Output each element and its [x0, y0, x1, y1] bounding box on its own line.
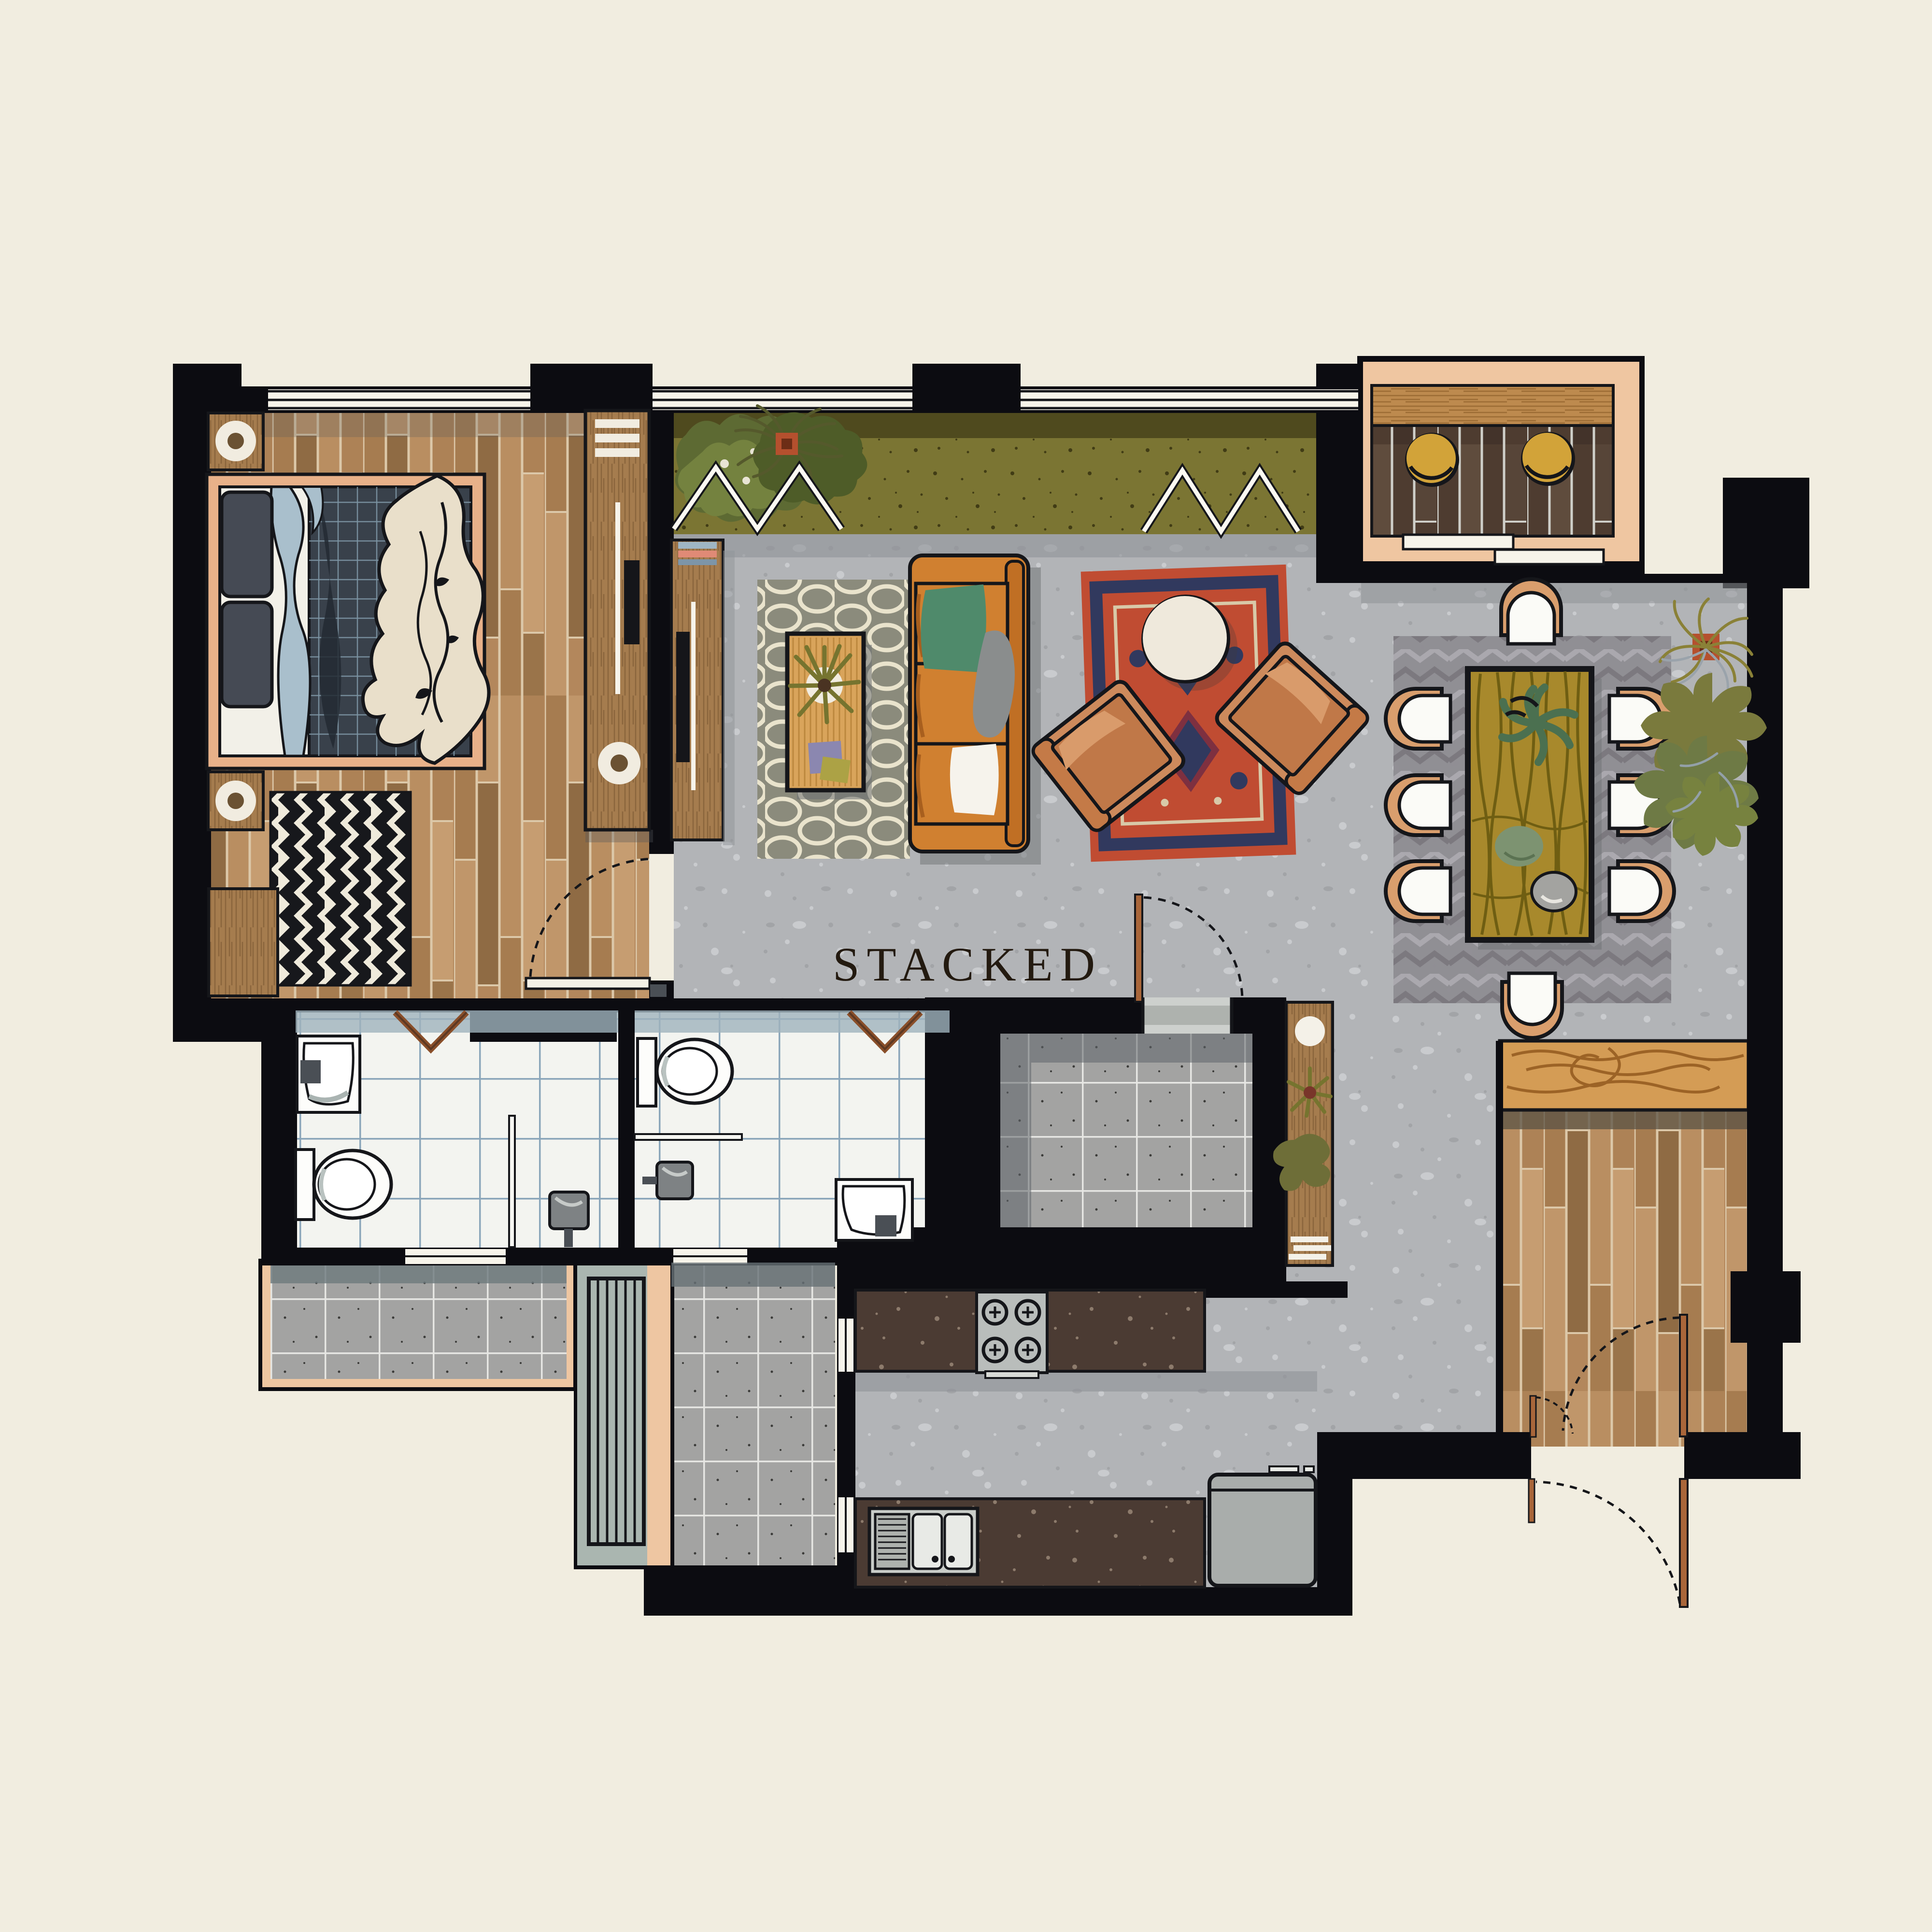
svg-text:STACKED: STACKED: [833, 938, 1102, 991]
